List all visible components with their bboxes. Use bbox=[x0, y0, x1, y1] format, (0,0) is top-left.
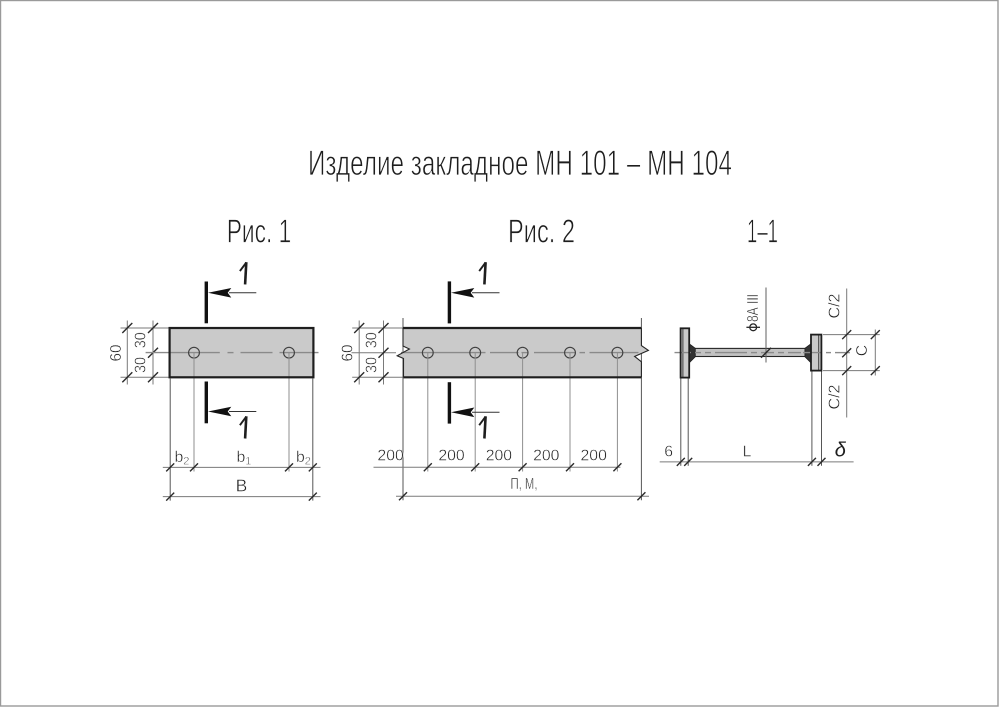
svg-text:L: L bbox=[743, 443, 752, 460]
svg-text:Рис. 1: Рис. 1 bbox=[227, 213, 292, 250]
svg-text:200: 200 bbox=[486, 448, 513, 465]
svg-text:200: 200 bbox=[438, 448, 465, 465]
svg-text:Рис. 2: Рис. 2 bbox=[508, 213, 575, 250]
svg-text:200: 200 bbox=[581, 448, 608, 465]
svg-text:8А III: 8А III bbox=[745, 294, 762, 322]
svg-text:6: 6 bbox=[664, 443, 673, 460]
svg-text:200: 200 bbox=[377, 448, 404, 465]
svg-text:С: С bbox=[854, 345, 871, 356]
svg-text:В: В bbox=[236, 476, 248, 496]
svg-text:П, М,: П, М, bbox=[511, 476, 538, 493]
svg-text:30: 30 bbox=[133, 357, 150, 373]
svg-text:30: 30 bbox=[133, 332, 150, 348]
svg-text:30: 30 bbox=[364, 357, 381, 373]
svg-text:δ: δ bbox=[835, 440, 847, 462]
svg-text:Изделие закладное МН 101 – МН: Изделие закладное МН 101 – МН 104 bbox=[308, 143, 732, 183]
svg-text:200: 200 bbox=[533, 448, 560, 465]
svg-text:С/2: С/2 bbox=[827, 294, 844, 319]
svg-text:60: 60 bbox=[339, 344, 356, 361]
svg-text:1–1: 1–1 bbox=[747, 213, 778, 250]
svg-text:30: 30 bbox=[364, 332, 381, 348]
svg-text:60: 60 bbox=[108, 344, 125, 361]
svg-text:С/2: С/2 bbox=[827, 385, 844, 410]
